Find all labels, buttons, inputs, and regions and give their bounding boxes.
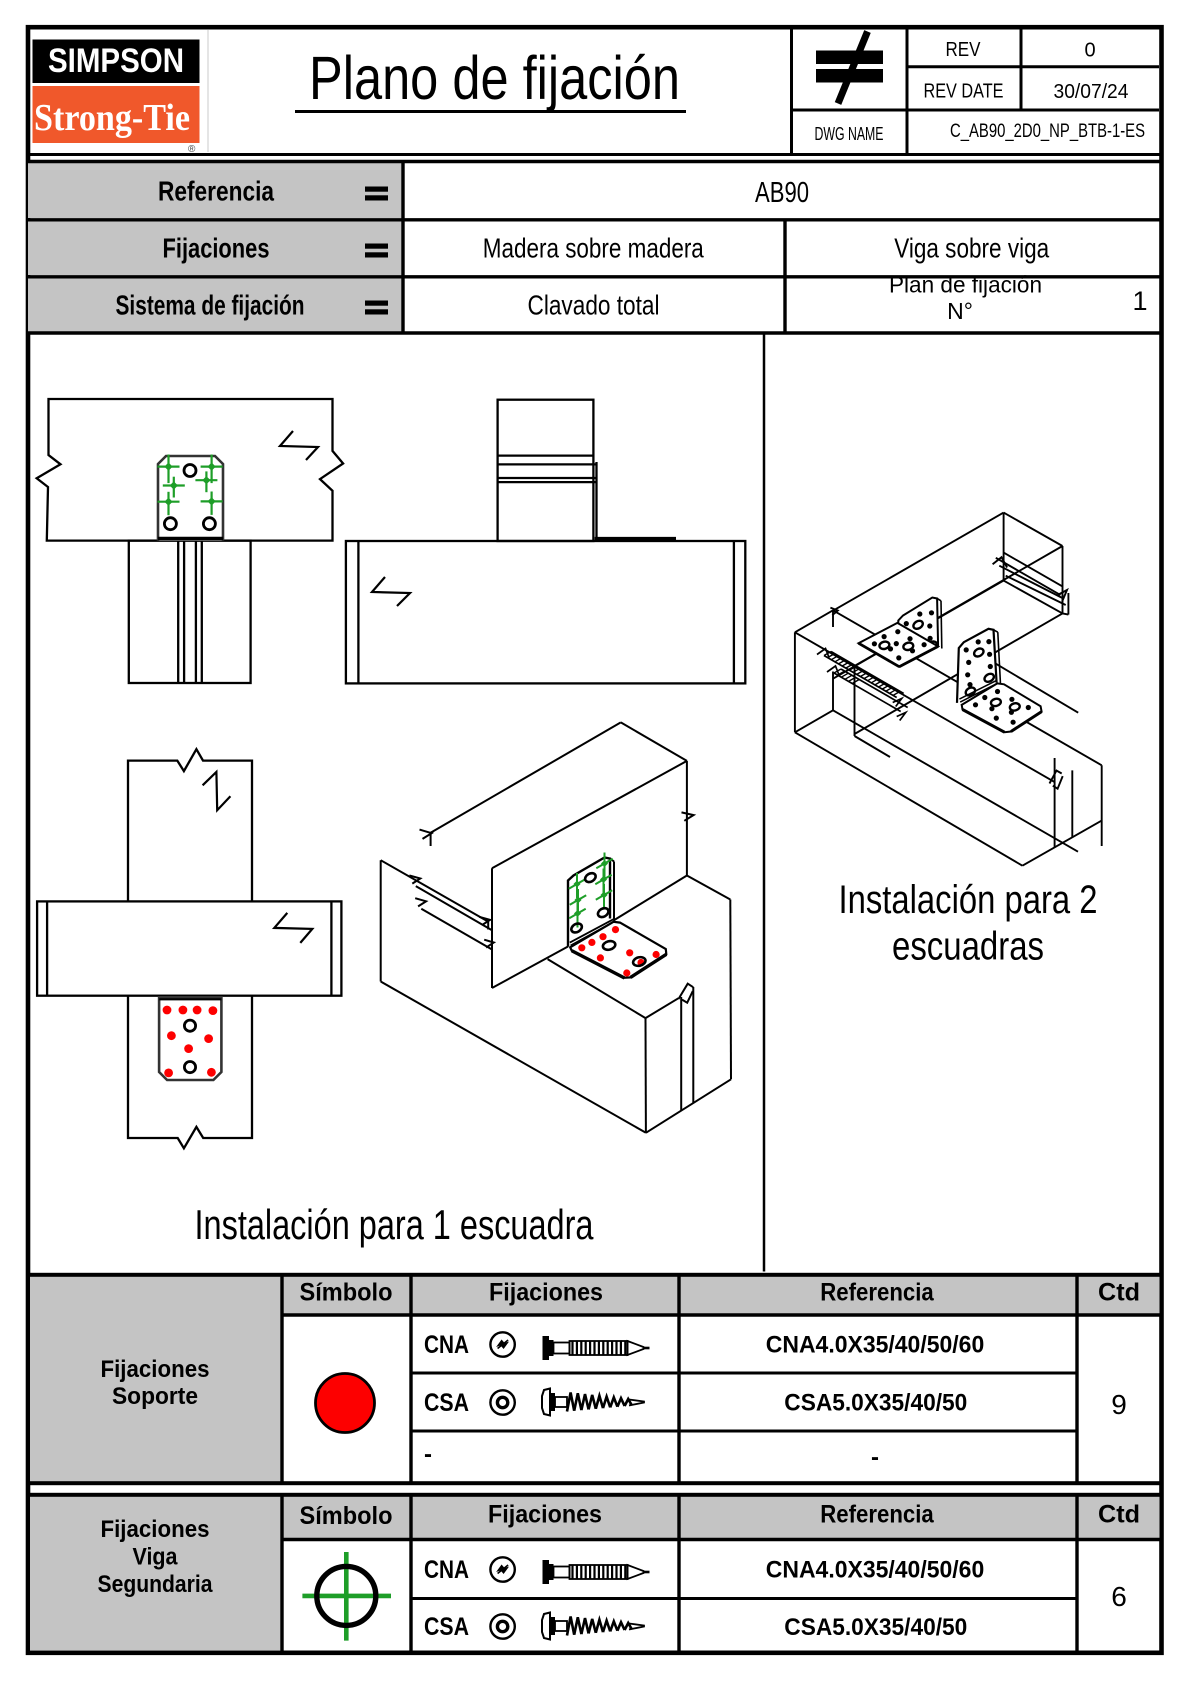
- svg-text:Instalación para 1 escuadra: Instalación para 1 escuadra: [195, 1201, 594, 1248]
- svg-text:Instalación para 2: Instalación para 2: [839, 878, 1098, 922]
- svg-text:Viga: Viga: [133, 1544, 179, 1571]
- svg-text:Viga sobre viga: Viga sobre viga: [894, 233, 1050, 264]
- svg-text:0: 0: [1084, 40, 1095, 62]
- svg-text:Referencia: Referencia: [820, 1501, 934, 1529]
- svg-text:Soporte: Soporte: [112, 1383, 198, 1410]
- svg-text:Ctd: Ctd: [1098, 1501, 1140, 1529]
- svg-text:CNA4.0X35/40/50/60: CNA4.0X35/40/50/60: [766, 1332, 985, 1359]
- svg-text:Clavado total: Clavado total: [528, 290, 660, 321]
- svg-text:SIMPSON: SIMPSON: [48, 42, 184, 80]
- svg-text:CSA: CSA: [424, 1613, 469, 1641]
- svg-text:Fijaciones: Fijaciones: [163, 233, 270, 264]
- svg-text:C_AB90_2D0_NP_BTB-1-ES: C_AB90_2D0_NP_BTB-1-ES: [950, 121, 1145, 142]
- svg-text:Ctd: Ctd: [1098, 1279, 1140, 1307]
- svg-text:AB90: AB90: [755, 177, 809, 209]
- svg-text:Fijaciones: Fijaciones: [101, 1356, 210, 1383]
- svg-text:Strong-Tie: Strong-Tie: [34, 97, 190, 139]
- svg-text:CSA: CSA: [424, 1389, 469, 1417]
- svg-text:CNA: CNA: [424, 1556, 469, 1584]
- svg-text:Símbolo: Símbolo: [300, 1279, 393, 1307]
- svg-text:REV DATE: REV DATE: [924, 81, 1004, 103]
- svg-text:Madera sobre madera: Madera sobre madera: [483, 233, 705, 264]
- svg-text:-: -: [424, 1441, 432, 1468]
- svg-text:9: 9: [1111, 1389, 1127, 1420]
- svg-text:CNA: CNA: [424, 1331, 469, 1359]
- svg-text:CSA5.0X35/40/50: CSA5.0X35/40/50: [784, 1614, 967, 1641]
- svg-text:Símbolo: Símbolo: [300, 1502, 393, 1530]
- svg-text:REV: REV: [946, 39, 982, 61]
- svg-text:6: 6: [1111, 1581, 1127, 1612]
- svg-text:-: -: [871, 1444, 879, 1471]
- svg-text:N°: N°: [947, 298, 973, 324]
- svg-text:DWG NAME: DWG NAME: [815, 124, 884, 144]
- svg-text:Fijaciones: Fijaciones: [101, 1516, 210, 1543]
- svg-text:1: 1: [1132, 286, 1147, 316]
- svg-text:CNA4.0X35/40/50/60: CNA4.0X35/40/50/60: [766, 1557, 985, 1584]
- svg-text:Plan de fijación: Plan de fijación: [889, 272, 1042, 298]
- svg-text:Referencia: Referencia: [820, 1279, 934, 1307]
- svg-text:30/07/24: 30/07/24: [1054, 80, 1129, 103]
- svg-text:Fijaciones: Fijaciones: [489, 1279, 603, 1307]
- svg-text:escuadras: escuadras: [892, 925, 1044, 969]
- svg-text:Plano de fijación: Plano de fijación: [309, 44, 680, 112]
- svg-text:Segundaria: Segundaria: [98, 1571, 214, 1598]
- svg-text:CSA5.0X35/40/50: CSA5.0X35/40/50: [784, 1390, 967, 1417]
- svg-text:Fijaciones: Fijaciones: [488, 1501, 602, 1529]
- svg-text:Sistema de fijación: Sistema de fijación: [116, 290, 305, 321]
- svg-text:Referencia: Referencia: [158, 176, 274, 207]
